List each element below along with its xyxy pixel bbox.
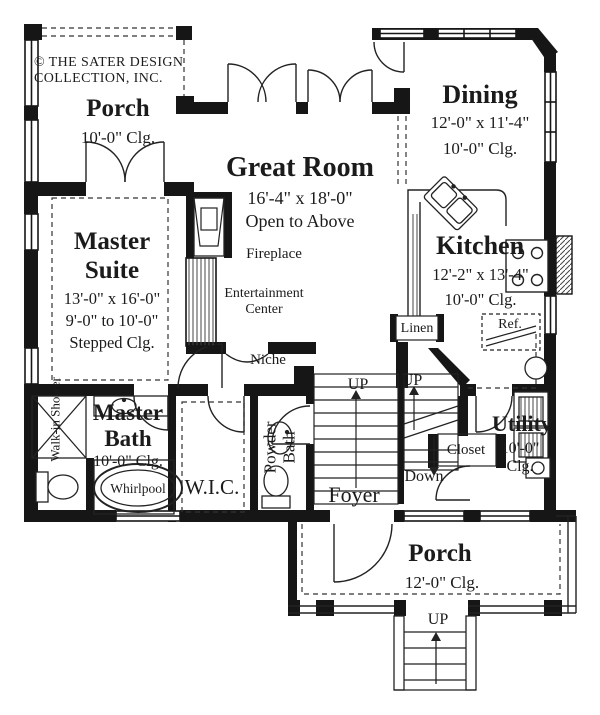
stair-up-right-label: UP xyxy=(394,372,430,390)
utility-sink xyxy=(525,357,547,379)
linen-label: Linen xyxy=(392,321,442,337)
porch-lower-ceiling: 12'-0" Clg. xyxy=(382,573,502,592)
room-label-powder-bath: Powder Bath xyxy=(261,417,300,477)
room-label-master-suite: Master Suite xyxy=(57,228,167,285)
fireplace-label: Fireplace xyxy=(226,246,322,263)
entertainment-center-label: Entertainment Center xyxy=(214,286,314,318)
copyright-notice: © THE SATER DESIGN COLLECTION, INC. xyxy=(34,55,206,87)
great-room-note: Open to Above xyxy=(210,211,390,232)
master-suite-dimensions: 13'-0" x 16'-0" xyxy=(47,290,177,309)
great-room-dimensions: 16'-4" x 18'-0" xyxy=(210,188,390,209)
kitchen-sink xyxy=(423,175,479,231)
master-bath-ceiling: 10'-0" Clg. xyxy=(68,453,188,471)
porch-steps-up-label: UP xyxy=(418,611,458,629)
niche-label: Niche xyxy=(238,352,298,369)
closet-label: Closet xyxy=(438,442,494,459)
stair-down-label: Down xyxy=(398,468,450,486)
utility-ceiling: 10'-0" Clg. xyxy=(489,440,551,476)
master-suite-ceiling: Stepped Clg. xyxy=(47,334,177,353)
dining-ceiling: 10'-0" Clg. xyxy=(405,139,555,158)
room-label-dining: Dining xyxy=(410,80,550,110)
stair-up-left-label: UP xyxy=(340,376,376,394)
entertainment-center-cabinet xyxy=(186,258,216,346)
whirlpool-label: Whirlpool xyxy=(102,481,174,496)
porch-upper-ceiling: 10'-0" Clg. xyxy=(58,128,178,147)
kitchen-dimensions: 12'-2" x 13'-4" xyxy=(408,266,553,285)
room-label-utility: Utility xyxy=(484,411,560,436)
walk-in-shower-label: Walk-in Shower xyxy=(49,373,64,465)
kitchen-ceiling: 10'-0" Clg. xyxy=(408,291,553,310)
dining-dimensions: 12'-0" x 11'-4" xyxy=(405,113,555,132)
ref-label: Ref. xyxy=(484,317,536,333)
floor-plan: © THE SATER DESIGN COLLECTION, INC. Porc… xyxy=(0,0,600,715)
master-suite-ceiling-range: 9'-0" to 10'-0" xyxy=(47,312,177,331)
room-label-master-bath: Master Bath xyxy=(73,400,183,452)
room-label-wic: W.I.C. xyxy=(176,476,248,500)
room-label-porch-lower: Porch xyxy=(380,540,500,569)
room-label-kitchen: Kitchen xyxy=(410,231,550,261)
room-label-foyer: Foyer xyxy=(312,482,396,507)
room-label-great-room: Great Room xyxy=(205,152,395,184)
master-toilet xyxy=(36,472,78,502)
room-label-porch-upper: Porch xyxy=(58,95,178,124)
